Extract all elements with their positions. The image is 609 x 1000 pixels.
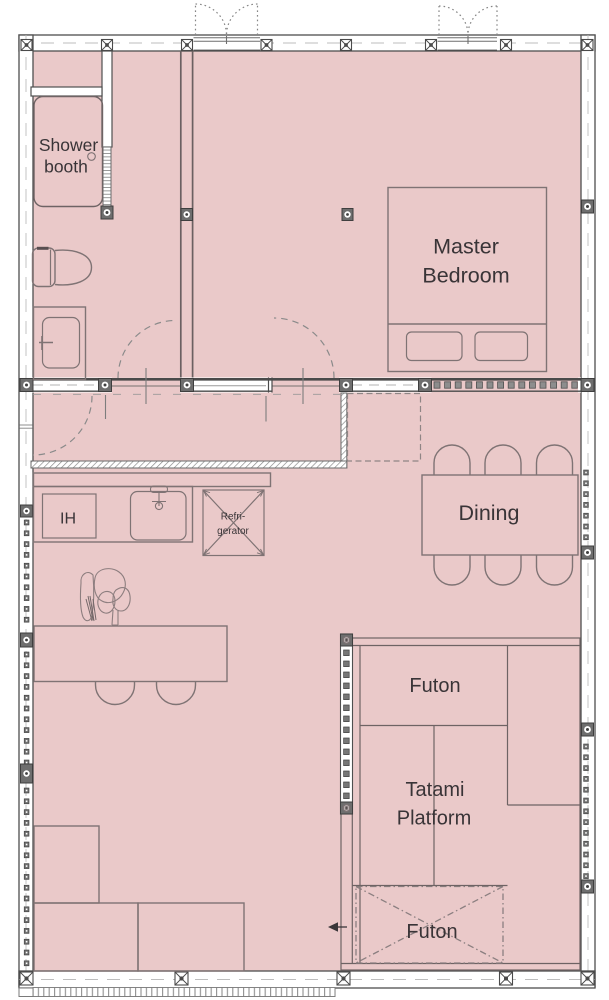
svg-text:Futon: Futon [409,675,460,697]
svg-text:Futon: Futon [406,921,457,943]
svg-text:Master: Master [433,235,499,259]
svg-text:IH: IH [60,511,76,528]
svg-text:booth: booth [44,157,88,177]
svg-text:Platform: Platform [397,808,471,830]
svg-text:Bedroom: Bedroom [422,264,509,288]
svg-text:Tatami: Tatami [406,779,465,801]
svg-text:gerator: gerator [217,526,249,537]
svg-text:Refri-: Refri- [221,512,245,523]
svg-text:Dining: Dining [459,501,520,525]
svg-text:Shower: Shower [39,135,99,155]
